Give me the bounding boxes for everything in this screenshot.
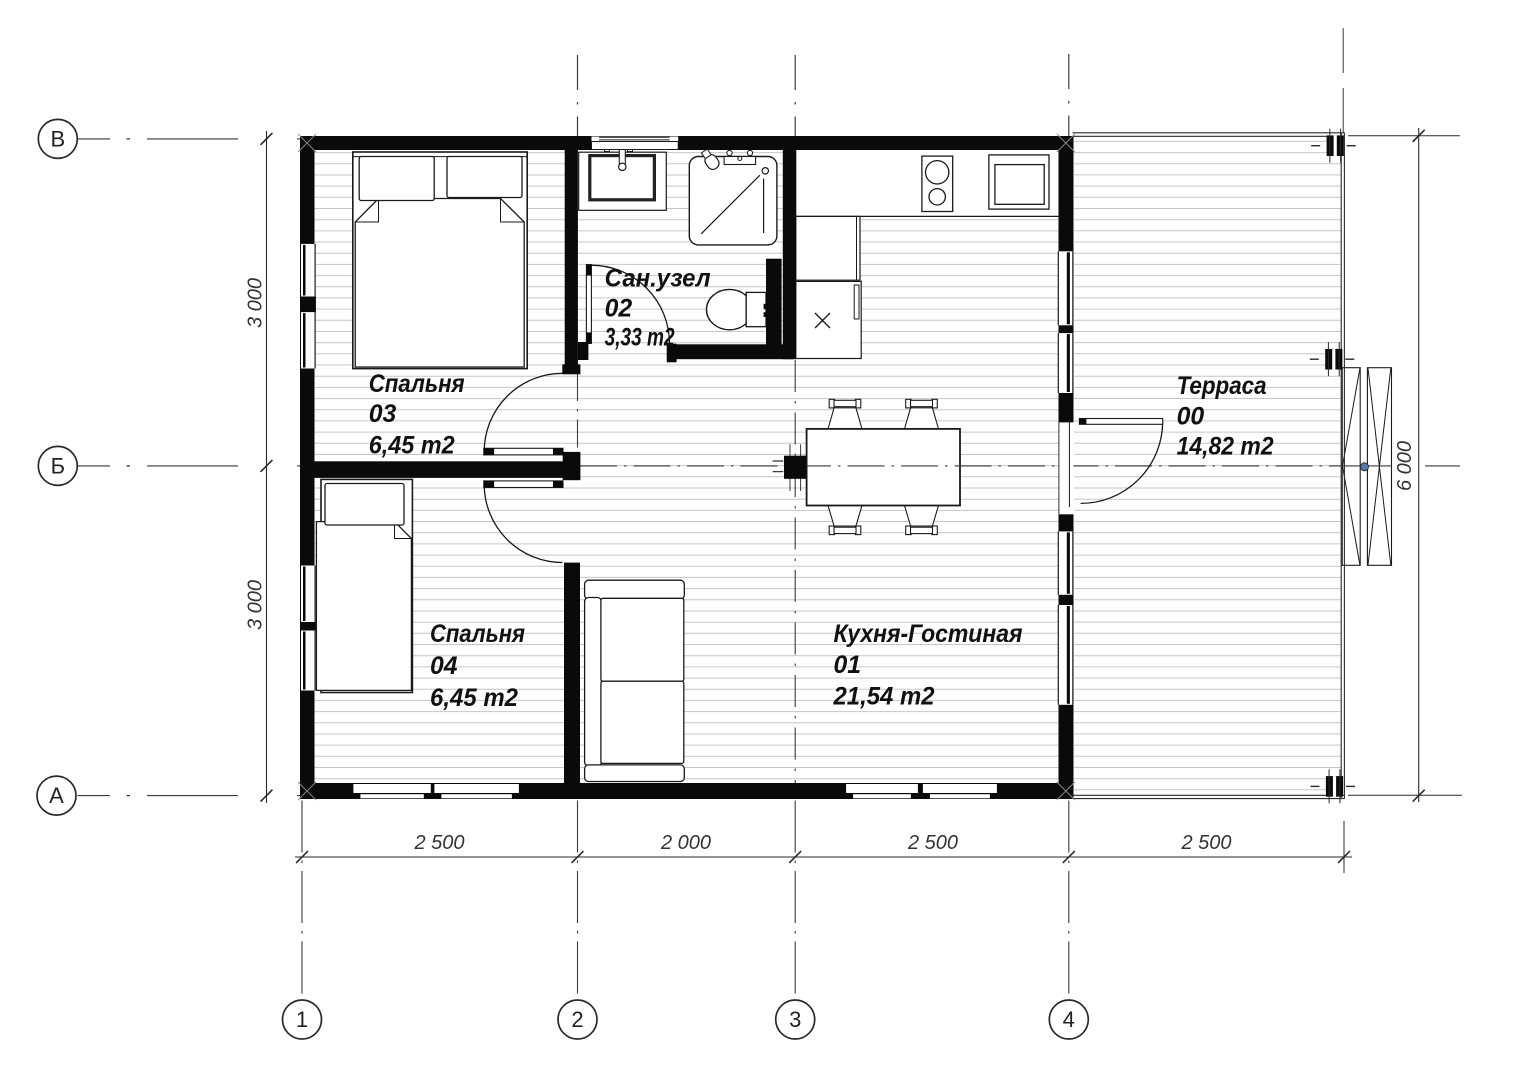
svg-text:В: В xyxy=(50,126,65,151)
svg-text:02: 02 xyxy=(605,296,633,323)
svg-text:6 000: 6 000 xyxy=(1394,441,1416,491)
svg-text:3,33 m2: 3,33 m2 xyxy=(605,325,675,352)
svg-text:Кухня-Гостиная: Кухня-Гостиная xyxy=(834,621,1023,648)
svg-text:А: А xyxy=(49,783,64,808)
svg-text:4: 4 xyxy=(1063,1007,1075,1032)
svg-text:2 500: 2 500 xyxy=(907,832,958,854)
svg-text:03: 03 xyxy=(369,401,397,428)
svg-text:01: 01 xyxy=(834,652,862,679)
svg-text:Спальня: Спальня xyxy=(369,371,465,398)
svg-text:04: 04 xyxy=(430,653,458,680)
svg-text:2 500: 2 500 xyxy=(413,832,464,854)
svg-text:2 000: 2 000 xyxy=(660,832,711,854)
svg-text:3 000: 3 000 xyxy=(245,278,267,328)
svg-text:3 000: 3 000 xyxy=(245,580,267,630)
svg-text:Терраса: Терраса xyxy=(1177,373,1267,400)
svg-text:2 500: 2 500 xyxy=(1180,832,1231,854)
svg-text:14,82 m2: 14,82 m2 xyxy=(1177,434,1274,461)
svg-text:00: 00 xyxy=(1177,404,1205,431)
svg-text:2: 2 xyxy=(571,1007,583,1032)
svg-text:Спальня: Спальня xyxy=(430,621,525,648)
svg-text:6,45 m2: 6,45 m2 xyxy=(430,685,518,712)
svg-text:21,54 m2: 21,54 m2 xyxy=(833,684,935,711)
svg-text:Сан.узел: Сан.узел xyxy=(605,266,711,293)
svg-text:1: 1 xyxy=(296,1007,308,1032)
svg-text:Б: Б xyxy=(51,453,65,478)
svg-text:6,45 m2: 6,45 m2 xyxy=(369,433,455,460)
svg-text:3: 3 xyxy=(789,1007,801,1032)
